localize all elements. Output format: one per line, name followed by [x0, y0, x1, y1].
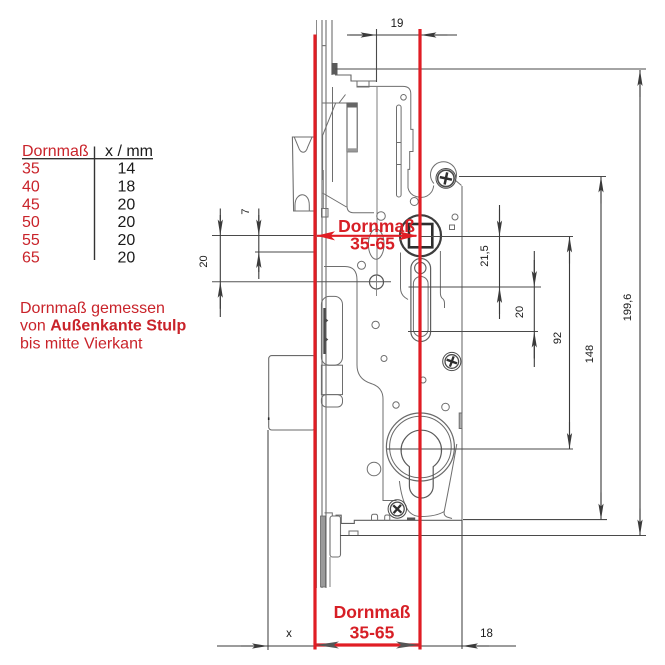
svg-text:18: 18 — [480, 628, 493, 640]
svg-text:148: 148 — [584, 345, 596, 363]
svg-text:20: 20 — [198, 255, 210, 267]
svg-text:35-65: 35-65 — [350, 623, 395, 643]
svg-text:65: 65 — [22, 250, 40, 267]
svg-text:14: 14 — [118, 161, 136, 178]
svg-text:20: 20 — [514, 306, 526, 318]
svg-text:20: 20 — [118, 196, 136, 213]
svg-text:von Außenkante Stulp: von Außenkante Stulp — [20, 318, 186, 335]
svg-text:x: x — [286, 628, 292, 640]
svg-text:18: 18 — [118, 179, 136, 196]
svg-text:19: 19 — [391, 18, 404, 30]
svg-text:7: 7 — [240, 208, 252, 214]
svg-text:50: 50 — [22, 214, 40, 231]
svg-text:x / mm: x / mm — [105, 143, 153, 160]
svg-text:20: 20 — [118, 214, 136, 231]
svg-text:55: 55 — [22, 232, 40, 249]
svg-text:92: 92 — [552, 332, 564, 344]
svg-text:Dornmaß: Dornmaß — [22, 143, 89, 160]
svg-text:20: 20 — [118, 250, 136, 267]
svg-text:21,5: 21,5 — [479, 245, 491, 266]
svg-text:40: 40 — [22, 179, 40, 196]
svg-text:Dornmaß: Dornmaß — [334, 602, 411, 622]
svg-text:bis mitte Vierkant: bis mitte Vierkant — [20, 335, 143, 352]
svg-text:199,6: 199,6 — [622, 294, 634, 322]
svg-text:35: 35 — [22, 161, 40, 178]
svg-text:45: 45 — [22, 196, 40, 213]
svg-text:Dornmaß gemessen: Dornmaß gemessen — [20, 300, 165, 317]
svg-text:20: 20 — [118, 232, 136, 249]
svg-text:35-65: 35-65 — [350, 234, 395, 254]
